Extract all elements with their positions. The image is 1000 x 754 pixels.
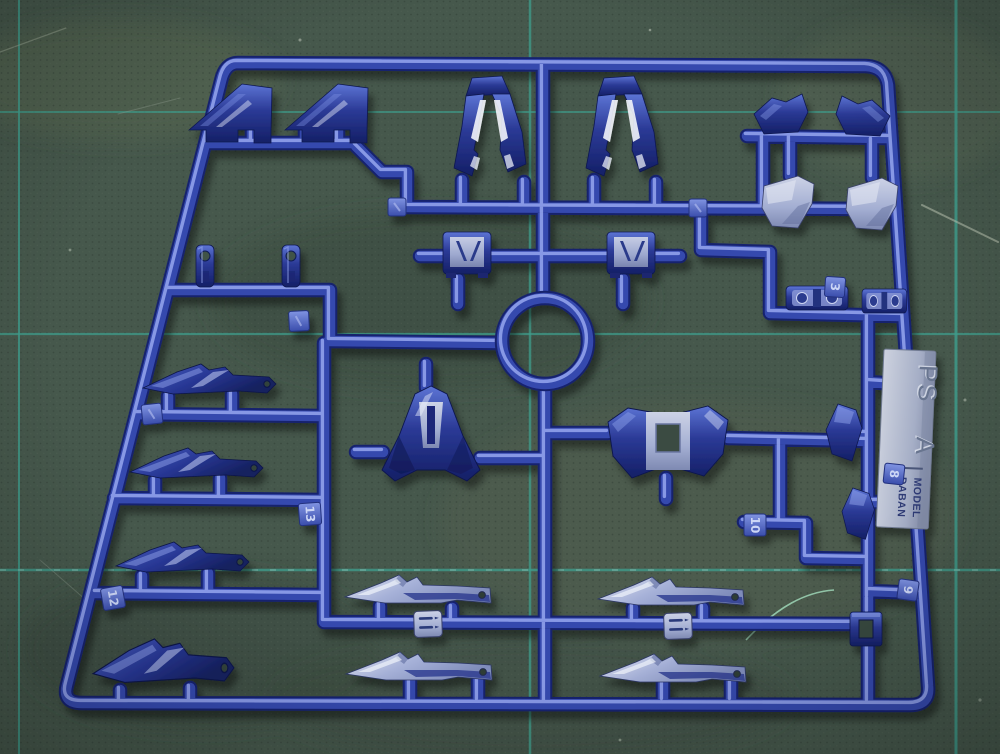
photo-model-kit-sprue: PS PS A A DABAN MODEL 3 8 9 10 12 [0,0,1000,754]
photo-vignette [0,0,1000,754]
sprue-photo-canvas: PS PS A A DABAN MODEL 3 8 9 10 12 [0,0,1000,754]
